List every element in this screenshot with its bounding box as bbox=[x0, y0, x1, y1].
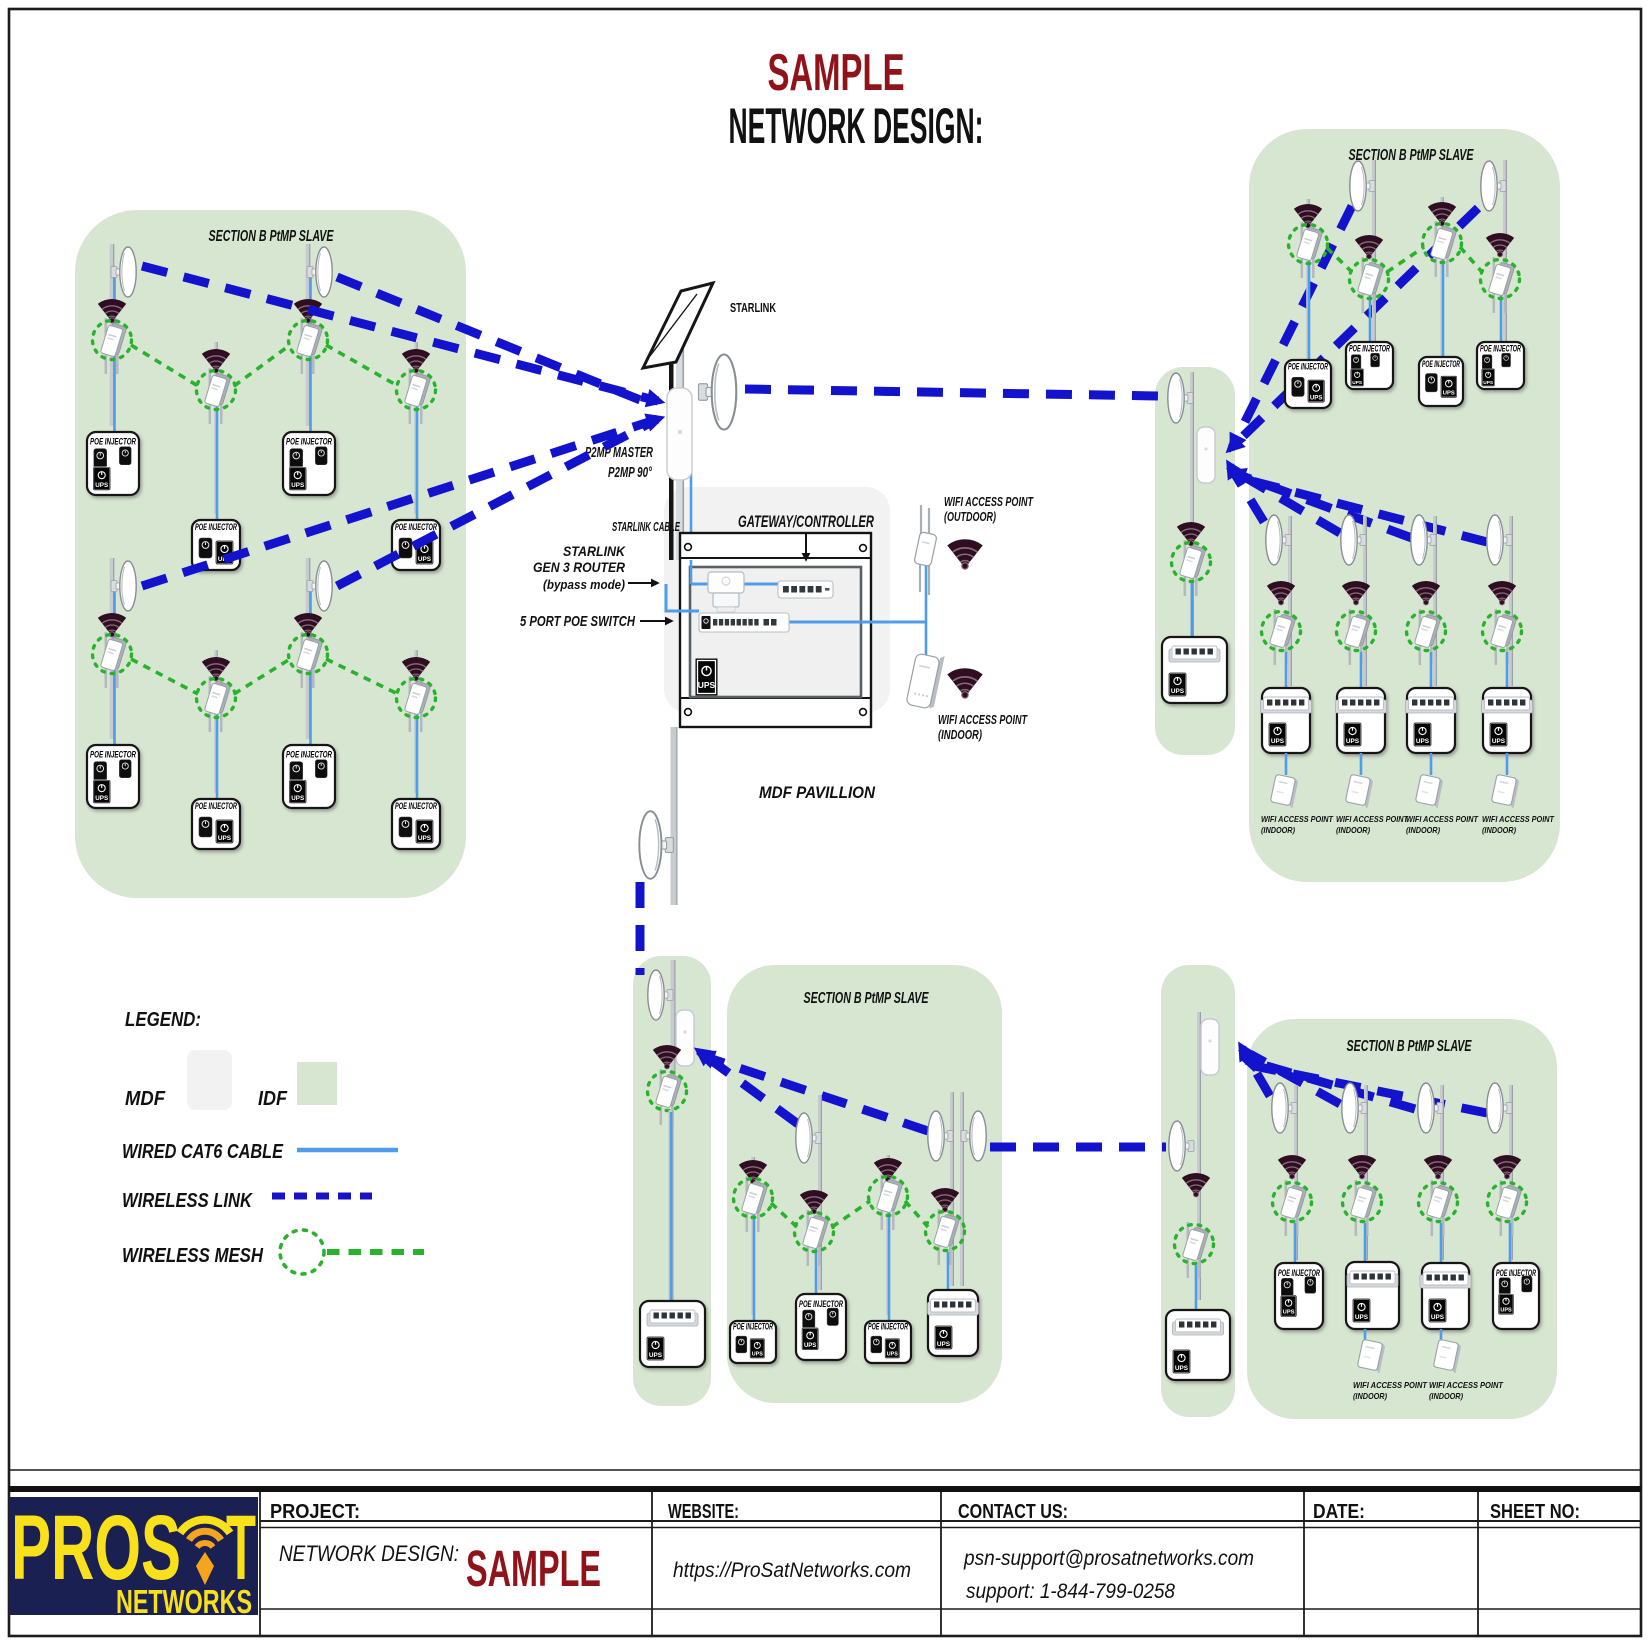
svg-text:POE INJECTOR: POE INJECTOR bbox=[395, 801, 437, 812]
svg-text:WIFI ACCESS POINT: WIFI ACCESS POINT bbox=[938, 712, 1028, 727]
svg-text:SECTION B PtMP SLAVE: SECTION B PtMP SLAVE bbox=[804, 990, 930, 1007]
svg-text:WIFI ACCESS POINT: WIFI ACCESS POINT bbox=[1482, 815, 1555, 824]
svg-text:WIFI ACCESS POINT: WIFI ACCESS POINT bbox=[944, 494, 1034, 509]
svg-text:POE INJECTOR: POE INJECTOR bbox=[195, 522, 237, 533]
svg-text:https://ProSatNetworks.com: https://ProSatNetworks.com bbox=[673, 1559, 911, 1582]
svg-text:POE INJECTOR: POE INJECTOR bbox=[395, 522, 437, 533]
svg-text:POE INJECTOR: POE INJECTOR bbox=[195, 801, 237, 812]
svg-text:WIFI ACCESS POINT: WIFI ACCESS POINT bbox=[1336, 815, 1409, 824]
svg-text:support: 1-844-799-0258: support: 1-844-799-0258 bbox=[966, 1580, 1175, 1603]
svg-text:POE INJECTOR: POE INJECTOR bbox=[286, 750, 332, 761]
svg-text:IDF: IDF bbox=[258, 1088, 288, 1110]
svg-text:UPS: UPS bbox=[698, 680, 716, 690]
svg-text:NETWORKS: NETWORKS bbox=[116, 1583, 252, 1620]
svg-text:STARLINK: STARLINK bbox=[563, 543, 626, 559]
svg-text:WIFI ACCESS POINT: WIFI ACCESS POINT bbox=[1261, 815, 1334, 824]
svg-text:POE INJECTOR: POE INJECTOR bbox=[733, 1321, 773, 1332]
svg-text:P2MP 90°: P2MP 90° bbox=[608, 464, 653, 481]
svg-text:POE INJECTOR: POE INJECTOR bbox=[90, 437, 136, 448]
svg-text:NETWORK DESIGN:: NETWORK DESIGN: bbox=[279, 1541, 459, 1566]
svg-text:POE INJECTOR: POE INJECTOR bbox=[1422, 359, 1460, 370]
svg-text:SECTION B PtMP SLAVE: SECTION B PtMP SLAVE bbox=[1347, 1038, 1473, 1055]
svg-text:POE INJECTOR: POE INJECTOR bbox=[1480, 343, 1521, 354]
svg-text:(INDOOR): (INDOOR) bbox=[1406, 826, 1440, 835]
svg-text:DATE:: DATE: bbox=[1313, 1501, 1365, 1523]
svg-text:WEBSITE:: WEBSITE: bbox=[668, 1501, 739, 1523]
svg-text:POE INJECTOR: POE INJECTOR bbox=[1349, 343, 1390, 354]
svg-text:SECTION B PtMP SLAVE: SECTION B PtMP SLAVE bbox=[209, 228, 335, 245]
svg-text:WIFI ACCESS POINT: WIFI ACCESS POINT bbox=[1353, 1381, 1428, 1390]
svg-text:MDF PAVILLION: MDF PAVILLION bbox=[759, 783, 876, 802]
svg-text:(INDOOR): (INDOOR) bbox=[938, 727, 982, 742]
svg-text:GATEWAY/CONTROLLER: GATEWAY/CONTROLLER bbox=[738, 512, 874, 531]
svg-text:WIFI ACCESS POINT: WIFI ACCESS POINT bbox=[1406, 815, 1479, 824]
svg-text:CONTACT US:: CONTACT US: bbox=[958, 1501, 1068, 1523]
svg-text:(INDOOR): (INDOOR) bbox=[1482, 826, 1516, 835]
svg-text:POE INJECTOR: POE INJECTOR bbox=[286, 437, 332, 448]
svg-text:(INDOOR): (INDOOR) bbox=[1261, 826, 1295, 835]
svg-text:STARLINK: STARLINK bbox=[730, 300, 776, 315]
svg-text:WIRELESS MESH: WIRELESS MESH bbox=[122, 1245, 263, 1267]
svg-text:STARLINK CABLE: STARLINK CABLE bbox=[612, 520, 680, 534]
svg-text:SHEET NO:: SHEET NO: bbox=[1490, 1501, 1580, 1523]
svg-text:psn-support@prosatnetworks.com: psn-support@prosatnetworks.com bbox=[963, 1547, 1254, 1570]
svg-text:SAMPLE: SAMPLE bbox=[466, 1540, 601, 1597]
svg-text:WIFI ACCESS POINT: WIFI ACCESS POINT bbox=[1429, 1381, 1504, 1390]
svg-text:(INDOOR): (INDOOR) bbox=[1353, 1392, 1387, 1401]
svg-text:(INDOOR): (INDOOR) bbox=[1429, 1392, 1463, 1401]
svg-text:SAMPLE: SAMPLE bbox=[768, 44, 905, 102]
svg-text:GEN 3 ROUTER: GEN 3 ROUTER bbox=[533, 559, 626, 575]
svg-text:WIRED CAT6 CABLE: WIRED CAT6 CABLE bbox=[122, 1141, 284, 1163]
svg-text:MDF: MDF bbox=[125, 1088, 166, 1110]
svg-text:(INDOOR): (INDOOR) bbox=[1336, 826, 1370, 835]
svg-text:NETWORK DESIGN:: NETWORK DESIGN: bbox=[729, 98, 984, 154]
svg-text:WIRELESS LINK: WIRELESS LINK bbox=[122, 1190, 253, 1212]
svg-text:5 PORT POE SWITCH: 5 PORT POE SWITCH bbox=[520, 613, 636, 630]
svg-text:POE INJECTOR: POE INJECTOR bbox=[868, 1321, 908, 1332]
svg-text:SECTION B PtMP SLAVE: SECTION B PtMP SLAVE bbox=[1349, 147, 1475, 164]
svg-text:(bypass mode): (bypass mode) bbox=[543, 577, 625, 592]
svg-text:POE INJECTOR: POE INJECTOR bbox=[1288, 362, 1328, 373]
svg-text:(OUTDOOR): (OUTDOOR) bbox=[944, 509, 996, 524]
svg-text:LEGEND:: LEGEND: bbox=[125, 1009, 201, 1031]
svg-text:PROJECT:: PROJECT: bbox=[270, 1501, 360, 1523]
svg-text:POE INJECTOR: POE INJECTOR bbox=[90, 750, 136, 761]
svg-text:P2MP MASTER: P2MP MASTER bbox=[585, 444, 653, 461]
